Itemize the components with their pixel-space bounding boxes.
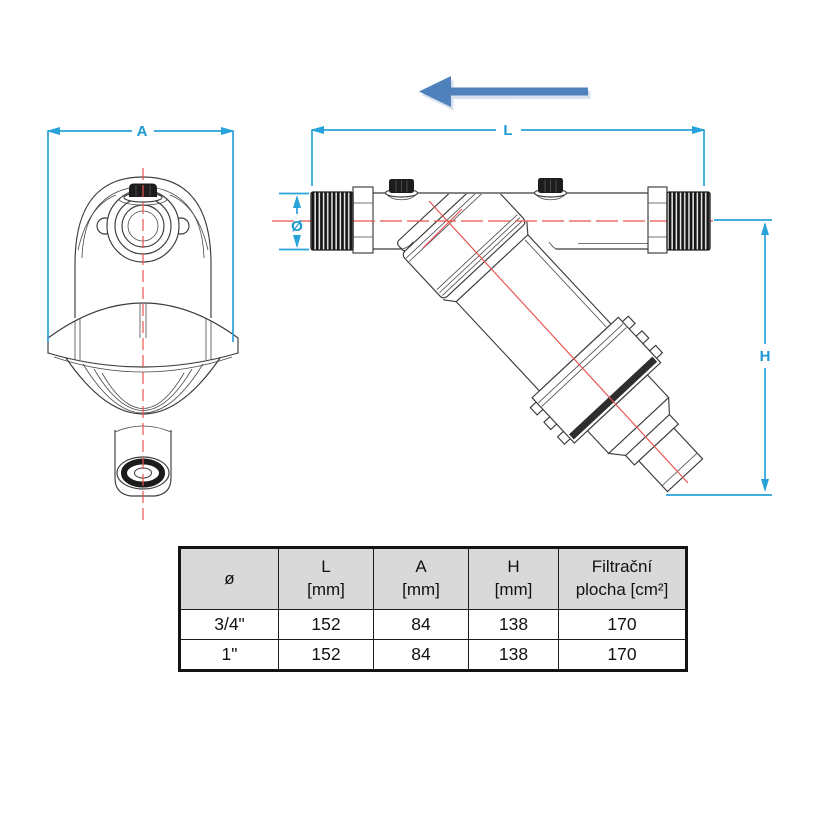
dimension-label-a: A xyxy=(137,123,148,140)
table-row: 3/4" 152 84 138 170 xyxy=(180,610,687,640)
table-cell: 138 xyxy=(469,610,559,640)
technical-drawing: A L Ø H xyxy=(0,0,826,540)
dimension-label-h: H xyxy=(760,348,771,365)
table-cell: 170 xyxy=(559,640,687,671)
table-row: 1" 152 84 138 170 xyxy=(180,640,687,671)
spec-table: ø L [mm] A [mm] H [mm] Filtrační ploc xyxy=(178,546,688,672)
table-cell: 152 xyxy=(279,610,374,640)
spec-table-header-row: ø L [mm] A [mm] H [mm] Filtrační ploc xyxy=(180,548,687,610)
table-cell: 84 xyxy=(374,640,469,671)
col-header-h: H [mm] xyxy=(469,548,559,610)
table-cell: 3/4" xyxy=(180,610,279,640)
table-cell: 170 xyxy=(559,610,687,640)
col-header-a: A [mm] xyxy=(374,548,469,610)
table-cell: 84 xyxy=(374,610,469,640)
table-cell: 138 xyxy=(469,640,559,671)
dimension-l: L xyxy=(310,122,706,186)
flow-direction-arrow xyxy=(419,76,591,111)
technical-drawing-page: A L Ø H ø xyxy=(0,0,826,826)
dimension-label-diameter: Ø xyxy=(291,218,303,235)
table-cell: 1" xyxy=(180,640,279,671)
col-header-l: L [mm] xyxy=(279,548,374,610)
spec-table-container: ø L [mm] A [mm] H [mm] Filtrační ploc xyxy=(178,546,688,672)
col-header-filter-area: Filtrační plocha [cm²] xyxy=(559,548,687,610)
dimension-label-l: L xyxy=(503,122,512,139)
table-cell: 152 xyxy=(279,640,374,671)
col-header-diameter: ø xyxy=(180,548,279,610)
